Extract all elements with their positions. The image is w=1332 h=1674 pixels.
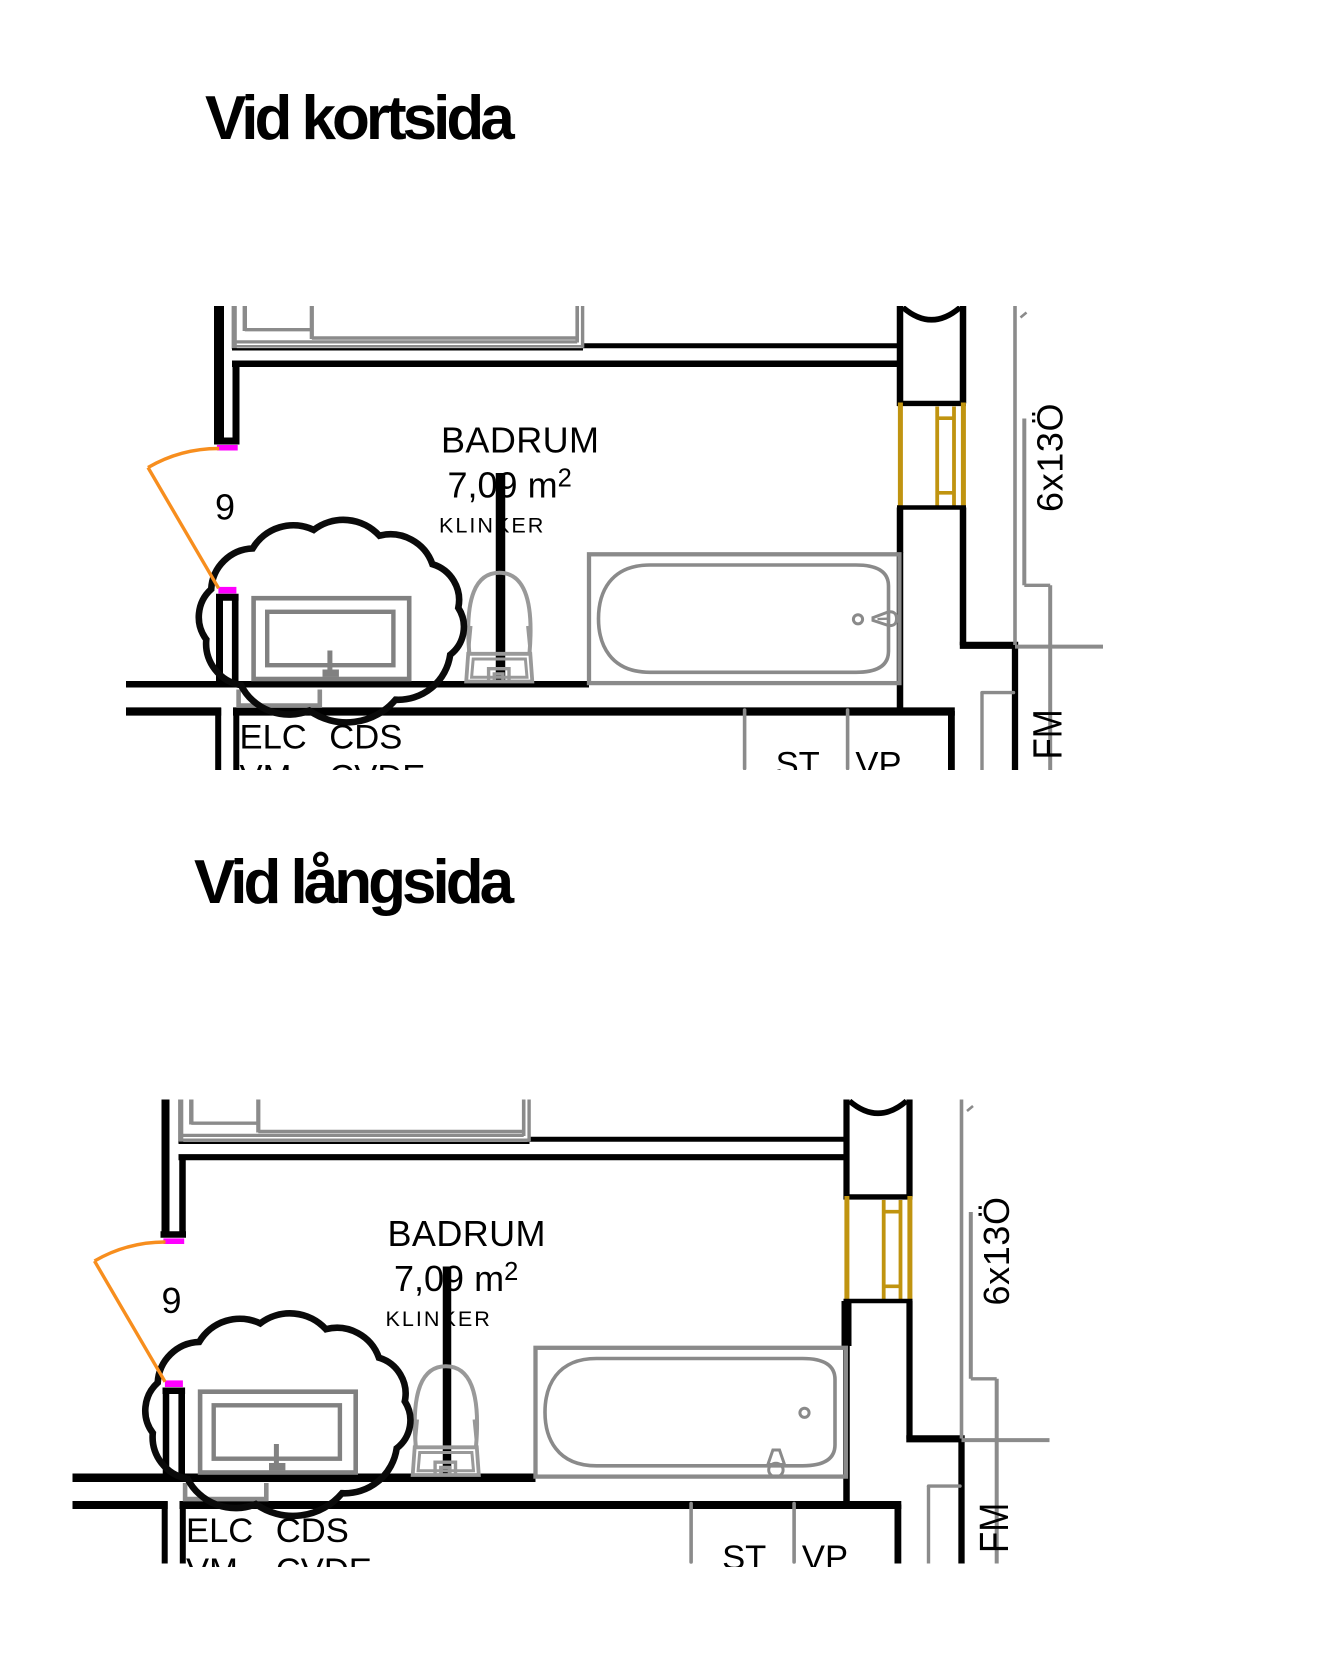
svg-text:CVDE: CVDE [276,1552,372,1567]
svg-text:VM: VM [186,1552,238,1567]
svg-text:ST: ST [776,745,820,770]
svg-text:VP: VP [802,1539,848,1567]
svg-text:6x13Ö: 6x13Ö [1030,403,1071,512]
svg-text:KLINKER: KLINKER [386,1306,492,1331]
svg-text:ELC: ELC [240,719,307,757]
svg-text:FM: FM [973,1503,1018,1553]
svg-text:FM: FM [1026,709,1071,759]
svg-text:CDS: CDS [276,1512,349,1550]
svg-text:ELC: ELC [186,1512,253,1550]
svg-text:7,09 m2: 7,09 m2 [448,464,572,505]
svg-text:6x13Ö: 6x13Ö [976,1196,1017,1305]
svg-text:VP: VP [855,745,901,770]
svg-text:ST: ST [722,1539,766,1567]
svg-text:CDS: CDS [329,719,402,757]
svg-text:7,09 m2: 7,09 m2 [394,1258,518,1299]
svg-text:VM: VM [240,758,292,770]
svg-text:BADRUM: BADRUM [388,1213,546,1254]
svg-text:9: 9 [162,1280,182,1321]
svg-text:CVDE: CVDE [329,758,425,770]
svg-text:9: 9 [215,486,235,527]
svg-text:BADRUM: BADRUM [441,420,599,461]
svg-text:KLINKER: KLINKER [439,513,545,538]
